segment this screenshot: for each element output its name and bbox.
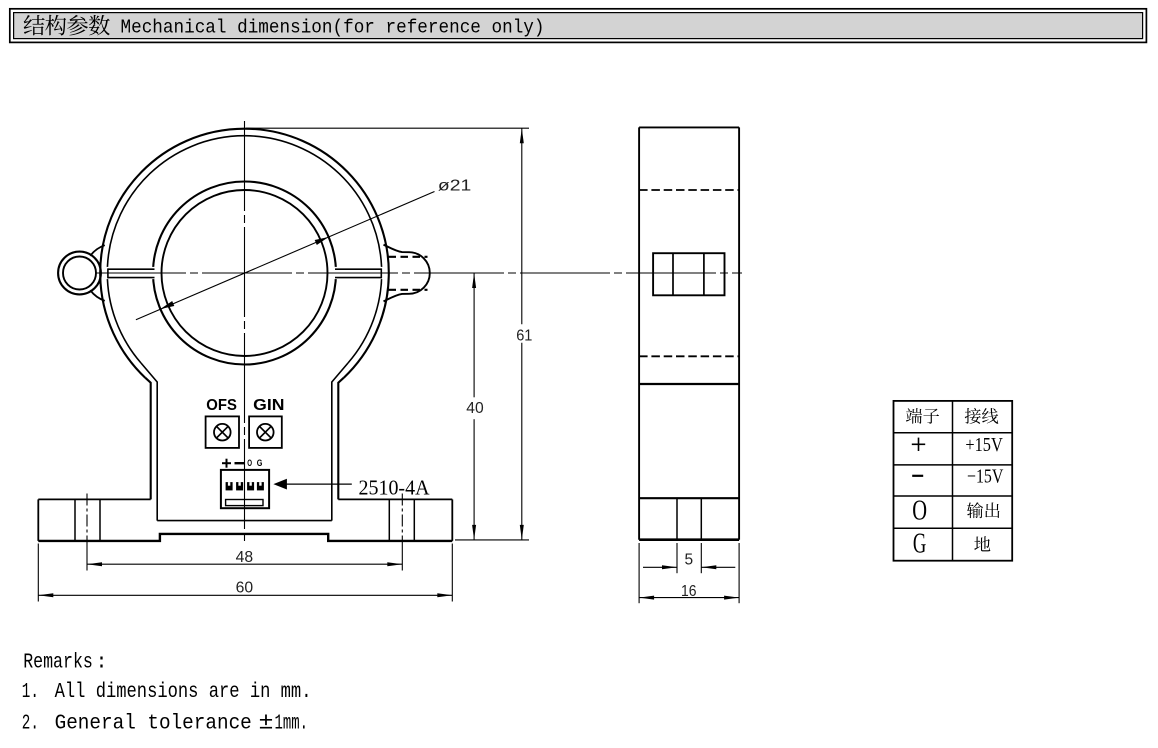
svg-text:Mechanical dimension(for refer: Mechanical dimension(for reference only) — [121, 16, 545, 38]
svg-text:61: 61 — [516, 328, 532, 345]
svg-text:O: O — [247, 458, 252, 469]
svg-text:±: ± — [259, 710, 274, 736]
svg-text:16: 16 — [681, 583, 697, 600]
svg-text:5: 5 — [685, 551, 694, 568]
svg-text:All dimensions are in mm.: All dimensions are in mm. — [55, 681, 312, 704]
svg-text:General tolerance: General tolerance — [55, 713, 252, 736]
svg-text:OFS: OFS — [206, 397, 237, 414]
svg-text:O: O — [912, 496, 927, 527]
svg-text:G: G — [257, 458, 263, 469]
svg-text:Remarks: Remarks — [23, 652, 93, 675]
svg-text:2510-4A: 2510-4A — [359, 475, 431, 499]
svg-text:40: 40 — [466, 400, 484, 417]
svg-text:1mm.: 1mm. — [275, 713, 309, 736]
svg-text:ø21: ø21 — [438, 177, 472, 194]
svg-text:G: G — [913, 529, 926, 560]
svg-text:48: 48 — [236, 549, 254, 566]
svg-text:1.: 1. — [22, 681, 39, 704]
svg-text:+15V: +15V — [965, 434, 1003, 456]
svg-text:GIN: GIN — [253, 397, 284, 414]
svg-text::: : — [96, 652, 108, 675]
svg-text:60: 60 — [236, 579, 254, 596]
svg-text:−15V: −15V — [967, 465, 1004, 487]
svg-text:2.: 2. — [22, 713, 39, 736]
